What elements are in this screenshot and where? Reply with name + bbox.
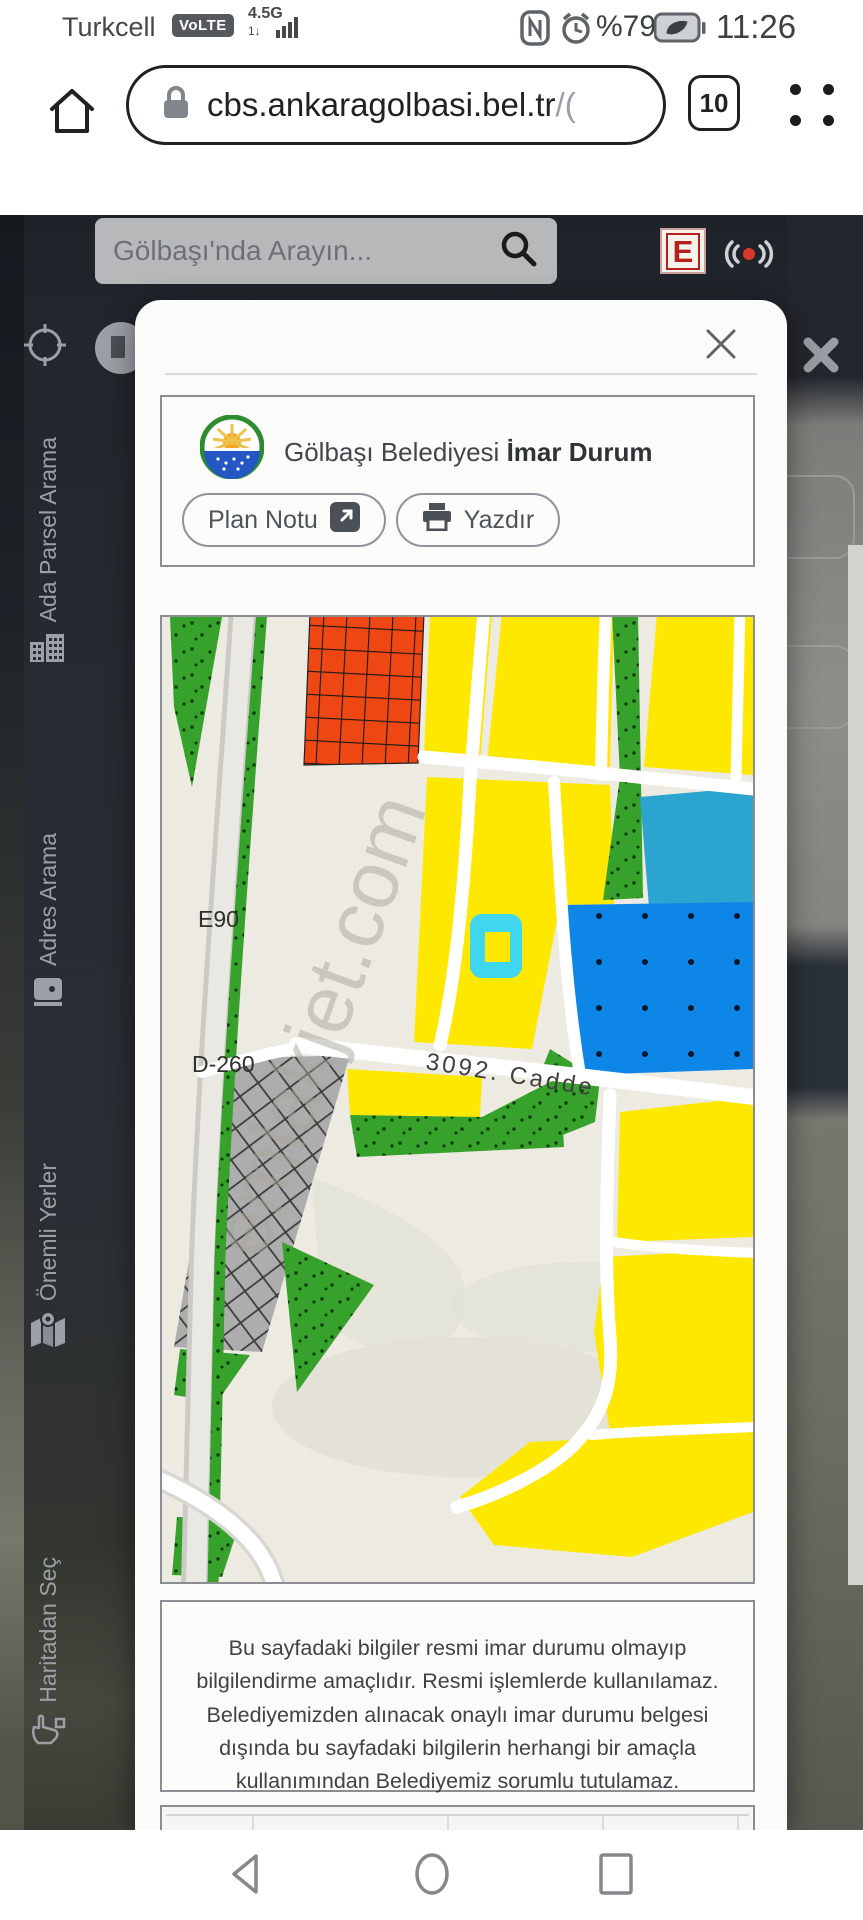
search-icon[interactable]	[499, 229, 539, 274]
map-label-d260: D-260	[192, 1051, 255, 1077]
modal-title: Gölbaşı Belediyesi İmar Durum	[284, 437, 652, 468]
underlying-close-icon[interactable]	[800, 334, 842, 381]
underlying-panel-edge	[848, 545, 863, 1585]
external-link-icon	[330, 502, 360, 539]
nfc-icon	[520, 10, 552, 51]
locate-crosshair-icon[interactable]	[22, 322, 68, 373]
nav-recents-button[interactable]	[592, 1848, 640, 1905]
status-bar: Turkcell VoLTE 4.5G 1↓ %79 11:26	[0, 0, 863, 55]
municipality-logo	[200, 415, 264, 484]
yazdir-button[interactable]: Yazdır	[396, 493, 560, 547]
disclaimer-box: Bu sayfadaki bilgiler resmi imar durumu …	[160, 1600, 755, 1792]
battery-icon	[654, 12, 706, 49]
phone-screen: Turkcell VoLTE 4.5G 1↓ %79 11:26 cbs.ank…	[0, 0, 863, 1920]
printer-icon	[422, 503, 452, 538]
tab-count-label: 10	[700, 88, 729, 119]
details-table-partial	[160, 1805, 755, 1830]
imar-durum-modal: Gölbaşı Belediyesi İmar Durum Plan Notu …	[135, 300, 787, 1830]
map-selected-parcel[interactable]	[470, 914, 522, 978]
poi-map-marker-icon	[29, 1311, 67, 1352]
hand-pointer-icon	[30, 1713, 66, 1752]
map-blue-zone	[560, 902, 753, 1075]
browser-home-icon[interactable]	[44, 83, 100, 144]
signal-bars-icon	[276, 14, 302, 45]
search-placeholder: Gölbaşı'nda Arayın...	[113, 235, 499, 267]
sidebar-item-label: Adres Arama	[35, 833, 62, 966]
sidebar-item-label: Ada Parsel Arama	[35, 437, 62, 622]
live-broadcast-icon[interactable]	[722, 234, 776, 279]
yazdir-label: Yazdır	[464, 506, 534, 535]
browser-menu-button[interactable]	[784, 79, 840, 131]
nav-home-button[interactable]	[408, 1848, 456, 1905]
disclaimer-text: Bu sayfadaki bilgiler resmi imar durumu …	[162, 1602, 753, 1799]
pharmacy-button[interactable]: E	[660, 228, 706, 274]
address-sign-icon	[30, 976, 66, 1015]
zoning-map[interactable]: E90 D-260 3092. Cadde emlakjet.com	[160, 615, 755, 1584]
search-input[interactable]: Gölbaşı'nda Arayın...	[95, 218, 557, 284]
modal-close-icon[interactable]	[703, 326, 739, 367]
sidebar-item-adres-arama[interactable]: Adres Arama	[16, 833, 80, 1015]
sidebar-item-label: Önemli Yerler	[35, 1163, 62, 1301]
zoning-map-svg: E90 D-260 3092. Cadde emlakjet.com	[162, 617, 753, 1582]
url-bar[interactable]: cbs.ankaragolbasi.bel.tr/(	[126, 65, 666, 145]
clock-label: 11:26	[716, 8, 796, 46]
carrier-label: Turkcell	[62, 12, 156, 43]
imar-info-box: Gölbaşı Belediyesi İmar Durum Plan Notu …	[160, 395, 755, 567]
modal-divider	[165, 373, 757, 375]
url-text: cbs.ankaragolbasi.bel.tr/(	[207, 86, 576, 124]
battery-percent-label: %79	[596, 10, 656, 44]
sidebar-item-ada-parsel-arama[interactable]: Ada Parsel Arama	[16, 437, 80, 667]
nav-back-button[interactable]	[222, 1848, 270, 1905]
alarm-icon	[558, 10, 594, 51]
browser-toolbar: cbs.ankaragolbasi.bel.tr/( 10	[0, 55, 863, 215]
map-red-zone	[304, 617, 424, 765]
sidebar-item-label: Haritadan Seç	[35, 1557, 62, 1703]
building-icon	[30, 632, 66, 667]
map-teal-zone	[640, 787, 753, 907]
map-label-e90: E90	[198, 906, 239, 932]
sidebar-item-haritadan-sec[interactable]: Haritadan Seç	[16, 1557, 80, 1752]
tab-counter-button[interactable]: 10	[688, 75, 740, 131]
sidebar-item-onemli-yerler[interactable]: Önemli Yerler	[16, 1163, 80, 1352]
plan-notu-label: Plan Notu	[208, 506, 318, 535]
android-nav-bar	[0, 1830, 863, 1920]
network-sub-label: 1↓	[248, 24, 261, 38]
volte-badge: VoLTE	[172, 14, 234, 37]
plan-notu-button[interactable]: Plan Notu	[182, 493, 386, 547]
pharmacy-e-label: E	[666, 233, 701, 270]
lock-icon	[161, 85, 191, 126]
